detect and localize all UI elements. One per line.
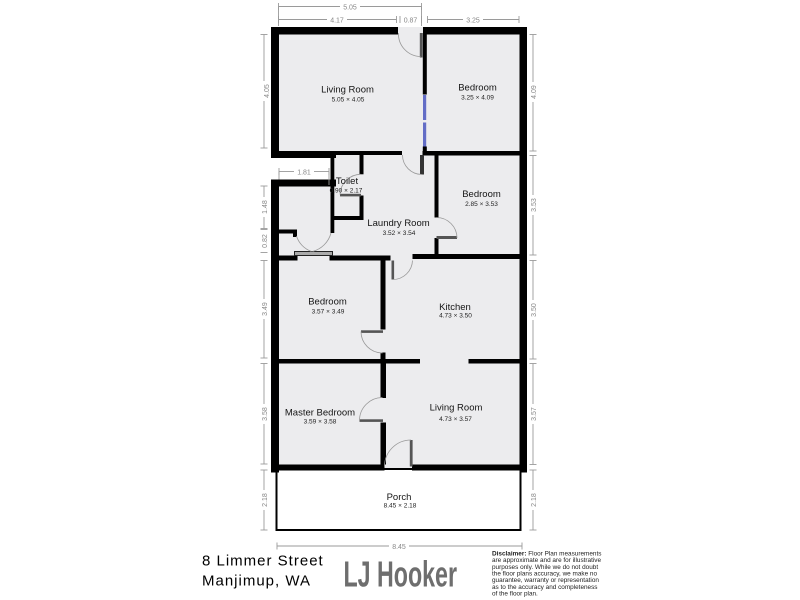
svg-text:0.82: 0.82 [262,234,269,248]
svg-text:5.05: 5.05 [343,5,357,12]
svg-text:4.73 × 3.57: 4.73 × 3.57 [439,416,472,423]
svg-text:0.90 × 2.17: 0.90 × 2.17 [330,188,363,195]
svg-text:of the floor plan.: of the floor plan. [492,591,538,598]
svg-text:3.25 × 4.09: 3.25 × 4.09 [461,95,494,102]
svg-text:3.25: 3.25 [466,18,480,25]
svg-text:Bedroom: Bedroom [462,189,501,200]
svg-text:4.09: 4.09 [531,85,538,99]
svg-text:Toilet: Toilet [336,176,359,187]
svg-text:Living Room: Living Room [321,85,374,96]
svg-text:8 Limmer Street: 8 Limmer Street [202,553,324,570]
svg-text:Manjimup, WA: Manjimup, WA [202,573,311,590]
svg-text:Living Room: Living Room [430,403,483,414]
svg-text:8.45 × 2.18: 8.45 × 2.18 [384,503,417,510]
svg-text:Laundry Room: Laundry Room [367,218,429,229]
svg-text:1.81: 1.81 [297,170,311,177]
svg-text:5.05 × 4.05: 5.05 × 4.05 [332,97,365,104]
svg-text:Bedroom: Bedroom [458,83,497,94]
svg-text:3.57 × 3.49: 3.57 × 3.49 [312,309,345,316]
svg-text:3.52 × 3.54: 3.52 × 3.54 [383,230,416,237]
svg-text:2.85 × 3.53: 2.85 × 3.53 [465,201,498,208]
svg-text:3.59 × 3.58: 3.59 × 3.58 [304,419,337,426]
svg-text:Kitchen: Kitchen [439,302,471,313]
svg-text:4.05: 4.05 [264,84,271,98]
svg-text:3.50: 3.50 [531,303,538,317]
svg-text:Porch: Porch [387,492,412,503]
svg-text:3.57: 3.57 [531,407,538,421]
svg-text:4.17: 4.17 [330,18,344,25]
svg-text:Master Bedroom: Master Bedroom [285,408,355,419]
svg-text:3.58: 3.58 [262,407,269,421]
svg-text:4.73 × 3.50: 4.73 × 3.50 [439,313,472,320]
svg-text:LJ Hooker: LJ Hooker [344,554,458,595]
svg-text:3.49: 3.49 [262,302,269,316]
svg-text:1.48: 1.48 [262,200,269,214]
svg-text:2.18: 2.18 [531,493,538,507]
svg-text:3.53: 3.53 [531,198,538,212]
svg-text:8.45: 8.45 [392,544,406,551]
svg-text:2.18: 2.18 [262,493,269,507]
svg-text:0.87: 0.87 [404,18,418,25]
svg-text:Bedroom: Bedroom [308,297,347,308]
